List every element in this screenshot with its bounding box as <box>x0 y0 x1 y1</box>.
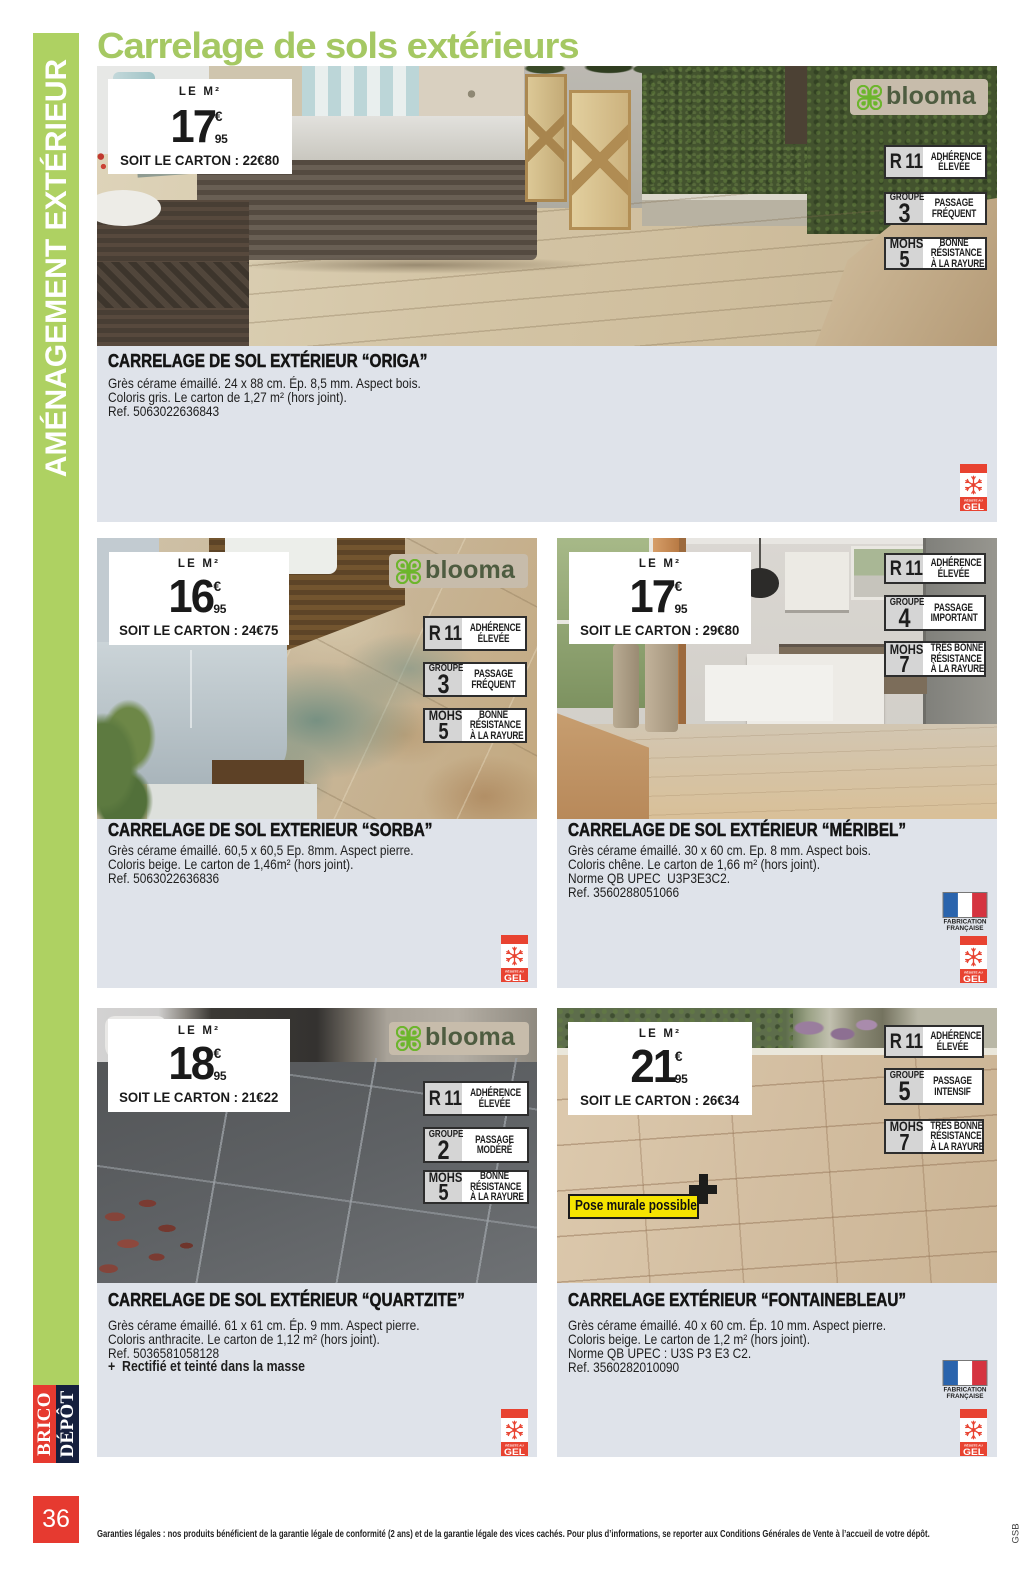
svg-text:FRANÇAISE: FRANÇAISE <box>947 925 985 932</box>
svg-text:FRANÇAISE: FRANÇAISE <box>947 1393 985 1400</box>
svg-text:GEL: GEL <box>963 1447 984 1457</box>
svg-text:GEL: GEL <box>963 502 984 512</box>
svg-text:GEL: GEL <box>963 974 984 984</box>
svg-text:GEL: GEL <box>504 973 525 983</box>
svg-text:GEL: GEL <box>504 1447 525 1457</box>
